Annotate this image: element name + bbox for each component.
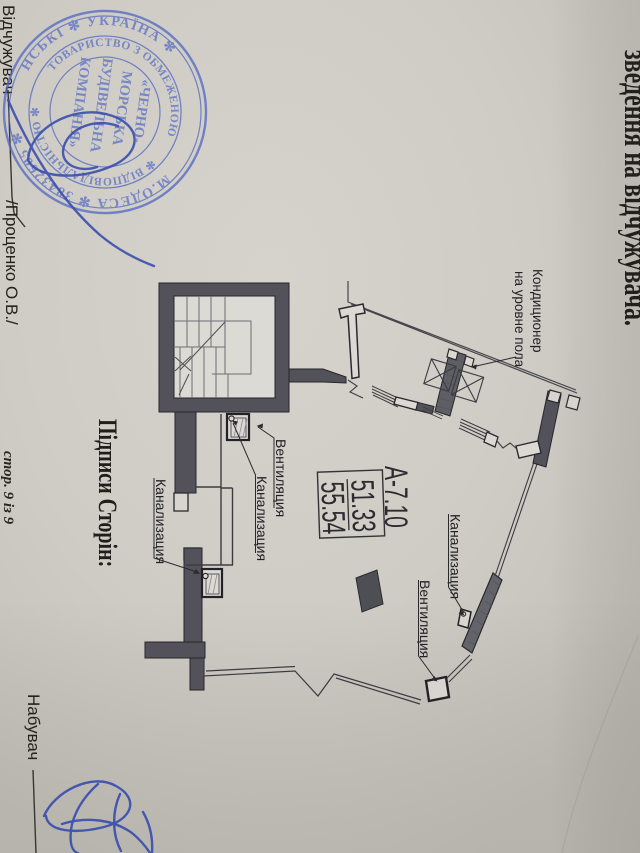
svg-text:на уровне пола: на уровне пола <box>512 271 527 368</box>
svg-text:/Проценко О.В./: /Проценко О.В./ <box>2 200 21 325</box>
svg-text:Набувач: Набувач <box>24 694 43 760</box>
svg-text:Підписи Сторін:: Підписи Сторін: <box>92 419 121 567</box>
svg-text:Кондиционер: Кондиционер <box>530 269 545 353</box>
svg-text:Канализация: Канализация <box>254 476 270 561</box>
svg-text:Вентиляция: Вентиляция <box>273 439 289 517</box>
svg-text:Вентиляция: Вентиляция <box>417 580 433 658</box>
svg-text:Канализация: Канализация <box>448 514 464 599</box>
svg-text:Канализация: Канализация <box>153 479 169 564</box>
svg-text:зведення на відчужувача.: зведення на відчужувача. <box>617 50 640 326</box>
svg-text:стор. 9 із 9: стор. 9 із 9 <box>0 451 16 525</box>
svg-text:55.54: 55.54 <box>314 481 353 535</box>
